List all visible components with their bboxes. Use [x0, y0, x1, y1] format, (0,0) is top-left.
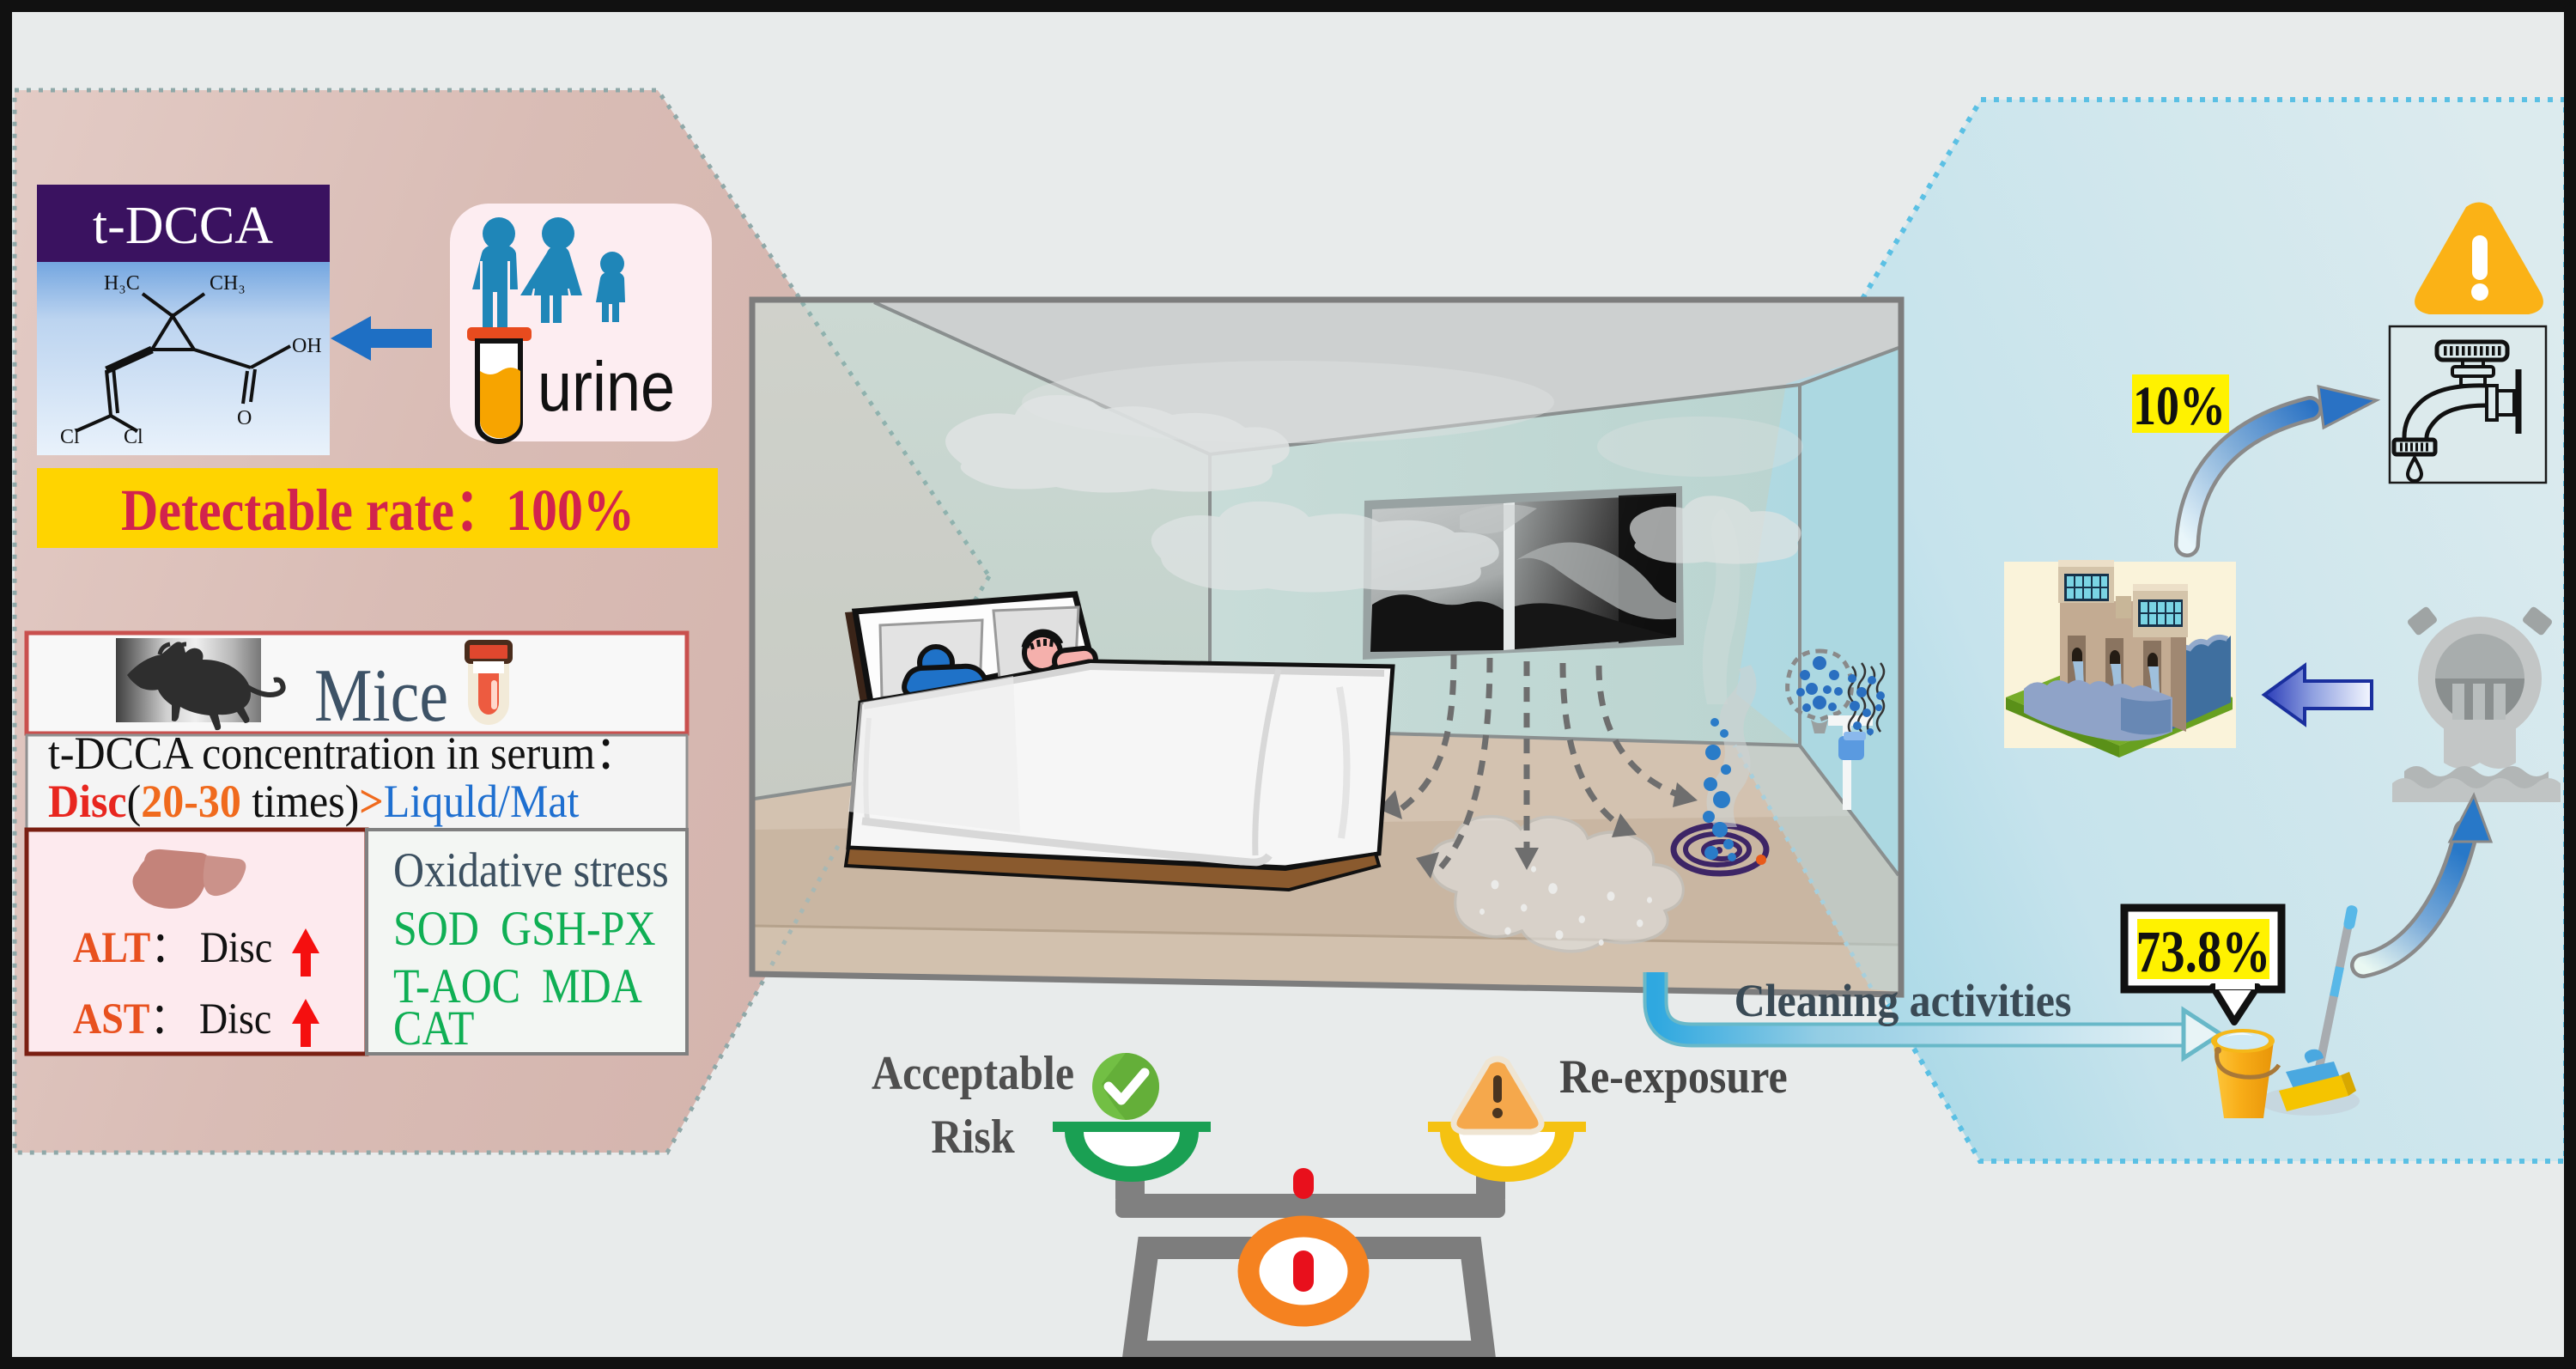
svg-text:O: O — [237, 407, 252, 429]
svg-text:Risk: Risk — [931, 1110, 1015, 1163]
svg-text:ALT： Disc: ALT： Disc — [73, 924, 272, 971]
svg-text:t-DCCA: t-DCCA — [93, 197, 273, 255]
svg-text:Disc(20-30 times)>Liquld/Mat: Disc(20-30 times)>Liquld/Mat — [48, 776, 580, 827]
svg-text:H₃C: H₃C — [104, 272, 140, 295]
svg-text:Re-exposure: Re-exposure — [1559, 1050, 1788, 1103]
svg-text:Detectable rate：100%: Detectable rate：100% — [121, 477, 635, 543]
svg-text:Cl: Cl — [124, 426, 143, 448]
svg-text:Cleaning activities: Cleaning activities — [1735, 976, 2072, 1026]
svg-text:Mice: Mice — [314, 654, 448, 737]
svg-text:Cl: Cl — [60, 426, 80, 448]
svg-text:Oxidative stress: Oxidative stress — [393, 843, 669, 897]
svg-text:OH: OH — [292, 335, 322, 357]
svg-text:10%: 10% — [2133, 374, 2226, 436]
svg-text:Acceptable: Acceptable — [872, 1047, 1074, 1099]
svg-text:73.8%: 73.8% — [2136, 919, 2271, 984]
svg-text:CAT: CAT — [393, 1001, 475, 1056]
svg-text:AST： Disc: AST： Disc — [73, 995, 271, 1043]
svg-text:urine: urine — [538, 348, 675, 426]
svg-text:CH₃: CH₃ — [210, 272, 246, 295]
svg-text:t-DCCA concentration in serum：: t-DCCA concentration in serum： — [48, 728, 638, 779]
svg-text:SOD GSH-PX: SOD GSH-PX — [393, 901, 656, 956]
